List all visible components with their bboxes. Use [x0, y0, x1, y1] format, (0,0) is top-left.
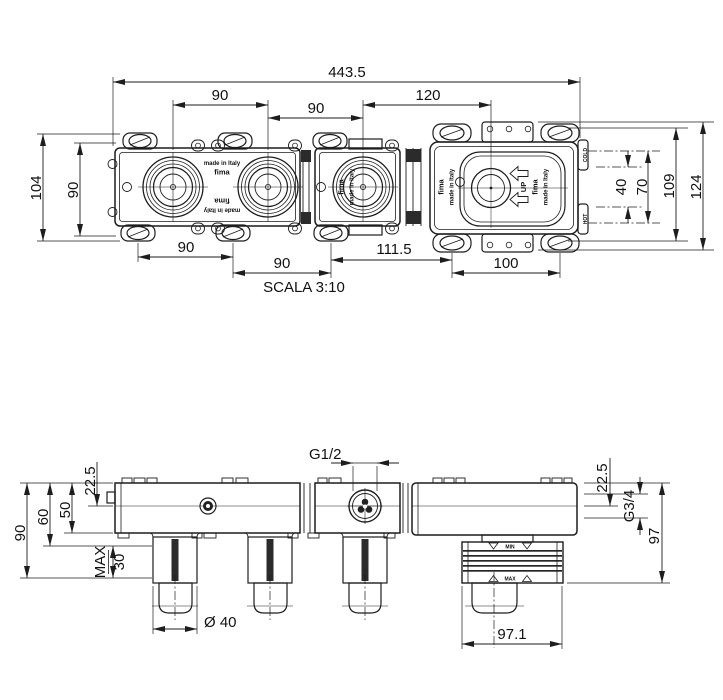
- dim-bottom-span1: 90: [138, 239, 233, 278]
- dim-height-plate: 90: [65, 143, 116, 236]
- bottom-view: MIN MAX 90 60 50 22.5: [12, 446, 670, 649]
- top-view: UP COLD HOT made in Italy fima fima made…: [28, 64, 714, 296]
- threaded-outlet: [245, 533, 295, 620]
- fixing-hole: [317, 183, 326, 192]
- svg-text:90: 90: [308, 100, 325, 117]
- side-stub: [107, 492, 115, 503]
- ear-screw: [121, 225, 155, 241]
- svg-text:104: 104: [28, 175, 45, 200]
- hot-tab: HOT: [578, 204, 589, 234]
- max-label: MAX: [92, 546, 109, 579]
- g12-port: [347, 488, 383, 524]
- svg-text:30: 30: [111, 554, 128, 571]
- dim-left-225: 22.5: [82, 462, 113, 506]
- svg-text:fima: fima: [337, 178, 346, 194]
- technical-drawing: UP COLD HOT made in Italy fima fima made…: [0, 0, 723, 700]
- dim-right-97: 97: [567, 483, 670, 583]
- svg-text:made in Italy: made in Italy: [350, 168, 356, 205]
- ear-screw: [216, 225, 250, 241]
- flange-neck: [482, 535, 533, 542]
- threaded-outlet: [150, 533, 200, 620]
- ear-screw: [313, 133, 347, 149]
- up-arrow-icon: [510, 193, 528, 207]
- max-marker-icon: [489, 576, 498, 582]
- svg-text:made in Italy: made in Italy: [544, 168, 550, 205]
- dim-bottom-span2: 90: [233, 243, 331, 278]
- cold-tab: COLD: [578, 140, 589, 170]
- ear-screw: [218, 133, 252, 149]
- svg-text:90: 90: [274, 255, 291, 272]
- dim-right-225: 22.5: [584, 458, 618, 506]
- mounting-ears-bottom: [121, 225, 382, 241]
- scale-label: SCALA 3:10: [263, 279, 345, 296]
- svg-text:97: 97: [646, 528, 663, 545]
- svg-text:made in Italy: made in Italy: [204, 161, 241, 167]
- thermo-plate: UP: [458, 150, 568, 228]
- g12-label: G1/2: [309, 446, 342, 463]
- body-left-unit: [107, 478, 300, 538]
- up-label: UP: [519, 182, 528, 192]
- body-thermo-unit: [412, 478, 577, 542]
- valve-port: [138, 152, 208, 222]
- dim-diameter-40: Ø 40: [153, 586, 237, 634]
- svg-text:fima: fima: [437, 178, 446, 194]
- threaded-outlet: [340, 533, 390, 620]
- dim-g12: G1/2: [309, 446, 399, 491]
- svg-text:made in Italy: made in Italy: [450, 168, 456, 205]
- body-middle-unit: [308, 478, 400, 538]
- svg-text:120: 120: [415, 87, 440, 104]
- svg-text:60: 60: [35, 509, 52, 526]
- svg-text:100: 100: [493, 255, 518, 272]
- up-arrow-icon: [510, 167, 528, 181]
- pipe-end: [254, 583, 287, 613]
- dim-bottom-span4: 100: [452, 253, 560, 278]
- svg-text:Ø 40: Ø 40: [204, 614, 237, 631]
- svg-text:22.5: 22.5: [594, 463, 611, 492]
- pipe-end: [472, 583, 517, 613]
- pipe-end: [159, 583, 192, 613]
- min-label: MIN: [505, 545, 515, 551]
- svg-text:90: 90: [12, 525, 29, 542]
- unit-junction: [403, 483, 408, 533]
- svg-text:fima: fima: [531, 178, 540, 194]
- svg-text:fima: fima: [214, 168, 230, 177]
- dim-max-30: MAX 30: [92, 546, 128, 579]
- unit-junction: [406, 148, 421, 226]
- svg-text:97.1: 97.1: [497, 626, 526, 643]
- fixing-hole: [123, 183, 132, 192]
- unit-junction: [304, 483, 310, 533]
- svg-text:22.5: 22.5: [82, 466, 99, 495]
- svg-text:443.5: 443.5: [328, 64, 366, 81]
- svg-text:made in Italy: made in Italy: [203, 207, 240, 213]
- max-label: MAX: [504, 577, 516, 583]
- valve-port: [233, 152, 303, 222]
- svg-text:111.5: 111.5: [376, 241, 411, 258]
- svg-text:70: 70: [634, 179, 651, 196]
- max-marker-icon: [523, 576, 532, 582]
- svg-text:109: 109: [661, 173, 678, 198]
- ear-screw: [123, 133, 157, 149]
- svg-text:90: 90: [65, 182, 82, 199]
- svg-text:40: 40: [613, 179, 630, 196]
- ear-screw: [314, 225, 348, 241]
- svg-text:50: 50: [57, 502, 74, 519]
- svg-text:90: 90: [212, 87, 229, 104]
- svg-text:124: 124: [688, 174, 705, 199]
- dim-left-90: 90: [12, 483, 152, 578]
- svg-text:90: 90: [178, 239, 195, 256]
- cold-label: COLD: [583, 148, 589, 163]
- dim-flange-width: 97.1: [462, 586, 562, 649]
- svg-text:fima: fima: [213, 197, 229, 206]
- mounting-ears-top: [123, 133, 382, 149]
- g34-label: G3/4: [621, 490, 638, 523]
